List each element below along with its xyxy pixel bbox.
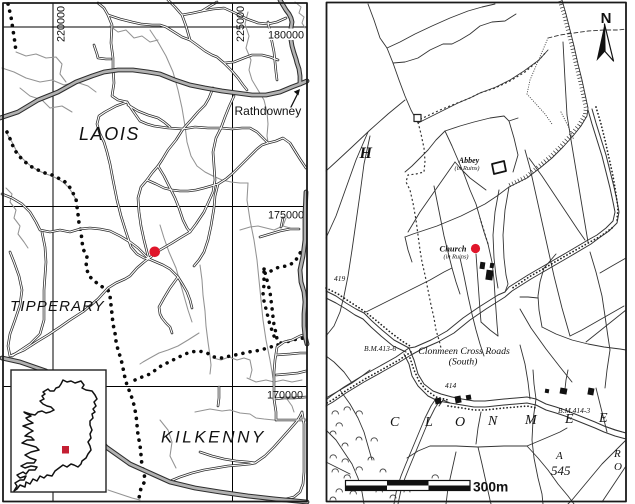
svg-text:220000: 220000 <box>56 6 68 42</box>
svg-text:(in Ruins): (in Ruins) <box>443 254 468 261</box>
svg-text:(in Ruins): (in Ruins) <box>454 165 479 172</box>
svg-text:B.M.414-3: B.M.414-3 <box>558 406 590 415</box>
svg-text:LAOIS: LAOIS <box>79 124 140 144</box>
svg-text:H: H <box>359 145 373 162</box>
svg-text:545: 545 <box>551 463 571 478</box>
svg-text:B.M.413-6: B.M.413-6 <box>364 344 396 353</box>
svg-text:225000: 225000 <box>235 6 247 42</box>
svg-text:R: R <box>613 448 621 460</box>
svg-text:300m: 300m <box>473 480 508 495</box>
svg-text:175000: 175000 <box>268 210 304 222</box>
svg-text:Church: Church <box>440 244 467 254</box>
svg-text:C: C <box>390 415 400 430</box>
svg-text:E: E <box>564 412 574 427</box>
svg-text:E: E <box>598 411 608 426</box>
svg-text:Rathdowney: Rathdowney <box>235 104 302 118</box>
svg-text:(South): (South) <box>449 357 478 368</box>
svg-text:Abbey: Abbey <box>458 156 480 165</box>
svg-text:M: M <box>524 413 538 428</box>
svg-text:Clonmeen Cross Roads: Clonmeen Cross Roads <box>418 346 510 357</box>
svg-text:N: N <box>601 10 612 27</box>
svg-text:TIPPERARY: TIPPERARY <box>10 298 105 315</box>
svg-text:O: O <box>614 461 622 473</box>
svg-text:414: 414 <box>445 381 457 390</box>
svg-text:A: A <box>555 450 563 462</box>
svg-text:O: O <box>455 415 465 430</box>
svg-text:180000: 180000 <box>268 30 304 42</box>
svg-text:L: L <box>424 415 433 430</box>
svg-text:N: N <box>487 414 498 429</box>
svg-text:KILKENNY: KILKENNY <box>161 428 266 447</box>
svg-text:170000: 170000 <box>267 390 303 402</box>
svg-text:419: 419 <box>334 274 346 283</box>
